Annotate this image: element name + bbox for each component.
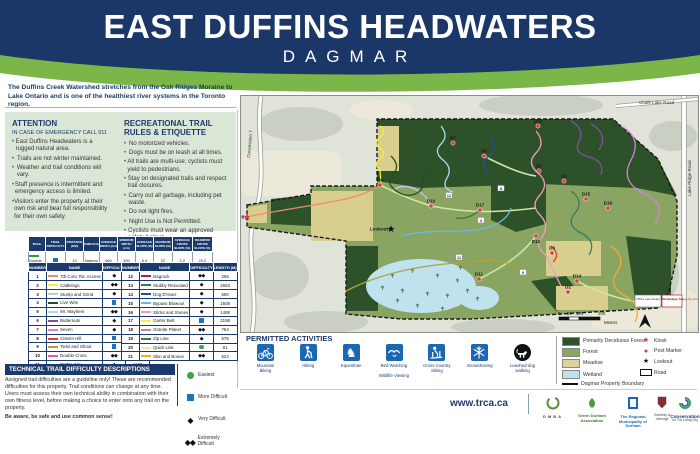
trail-color-swatch bbox=[141, 320, 151, 322]
rules-title: RECREATIONAL TRAIL RULES & ETIQUETTE bbox=[124, 120, 230, 138]
red-star-icon: ★ bbox=[640, 337, 652, 344]
trail-color-swatch bbox=[48, 275, 58, 277]
trail-name: 7th Conc Rd. Access bbox=[47, 272, 103, 281]
marker-label: D12 bbox=[532, 239, 541, 244]
map-legend-point-item: ★Lookout bbox=[640, 358, 682, 365]
activity-label: MountainBiking bbox=[244, 363, 287, 373]
snowshoe-icon bbox=[471, 344, 488, 361]
map-legend-area-item: Primarily Deciduous Forest bbox=[562, 337, 645, 346]
extremely-difficult-symbol: ◆◆ bbox=[198, 353, 205, 359]
more-difficult-symbol bbox=[112, 336, 117, 341]
trail-color-swatch bbox=[48, 302, 58, 304]
marker-label: D6 bbox=[481, 149, 487, 154]
marker-label: D3 bbox=[549, 246, 555, 251]
very-difficult-symbol: ◆ bbox=[200, 282, 203, 288]
intro-text: The Duffins Creek Watershed stretches fr… bbox=[8, 84, 234, 110]
trail-color-swatch bbox=[141, 355, 151, 357]
road-label-north: Chalk Lake Road bbox=[639, 100, 675, 105]
post-marker bbox=[534, 234, 538, 238]
difficulty-legend-label: Extremely Difficult bbox=[198, 435, 236, 447]
trail-number: 18 bbox=[122, 325, 140, 334]
hiking-icon bbox=[300, 344, 317, 361]
trail-col-header: LENGTH (M) bbox=[213, 263, 237, 272]
trail-name: Mr. Mayhem bbox=[47, 307, 103, 316]
trail-length: 81 bbox=[213, 343, 237, 352]
trail-number: 7 bbox=[29, 325, 47, 334]
trail-name: Cistern Hill bbox=[47, 334, 103, 343]
trail-row: 13Stubby Relocated◆2653 bbox=[122, 281, 238, 290]
point-legend-label: Kiosk bbox=[654, 338, 667, 344]
marker-label: D4 bbox=[561, 174, 567, 179]
trail-length: 2198 bbox=[213, 317, 237, 326]
trail-name: Butternuts bbox=[47, 316, 103, 325]
access-col-header: AVERAGE WIDTH (cm) bbox=[99, 237, 118, 252]
trail-difficulty: ◆◆ bbox=[190, 352, 213, 361]
svg-text:Meters: Meters bbox=[604, 320, 618, 325]
extremely-difficult-symbol: ◆◆ bbox=[198, 273, 205, 279]
bullet-text: Dogs must be on leash at all times. bbox=[129, 150, 222, 158]
trail-color-swatch bbox=[48, 346, 58, 348]
trail-difficulty: ◆◆ bbox=[190, 325, 213, 334]
trail-name: Cattlelogs bbox=[47, 281, 103, 290]
trail-number: 10 bbox=[29, 351, 47, 360]
rules-section: RECREATIONAL TRAIL RULES & ETIQUETTE •No… bbox=[124, 120, 230, 245]
attention-section: ATTENTION IN CASE OF EMERGENCY CALL 911 … bbox=[12, 120, 112, 223]
conservation-swirl-icon bbox=[679, 397, 691, 409]
mountain-bike-icon bbox=[257, 344, 274, 361]
road-swatch bbox=[640, 369, 652, 376]
post-marker bbox=[482, 154, 486, 158]
very-difficult-symbol: ◆ bbox=[200, 300, 203, 306]
trail-number: 5 bbox=[29, 307, 47, 316]
trail-number: 4 bbox=[29, 299, 47, 308]
bullet-text: Do not light fires. bbox=[129, 209, 174, 217]
trail-number: 16 bbox=[122, 308, 140, 317]
svg-text:♞: ♞ bbox=[345, 345, 356, 359]
trail-color-swatch bbox=[29, 255, 39, 257]
map-legend-area-item: Dagmar Property Boundary bbox=[562, 381, 645, 387]
bird-watching-icon bbox=[386, 344, 403, 361]
marker-label: D11 bbox=[475, 272, 484, 277]
post-marker bbox=[536, 124, 540, 128]
extremely-difficult-symbol: ◆◆ bbox=[111, 282, 118, 288]
bullet-text: Visitors enter the property at their own… bbox=[14, 199, 112, 222]
difficulty-legend-label: Easiest bbox=[198, 372, 214, 378]
attention-item: •Weather and trail conditions will vary. bbox=[12, 165, 112, 180]
difficulty-legend: EasiestMore Difficult◆Very Difficult◆◆Ex… bbox=[184, 366, 236, 454]
access-table-header: TRAILTRAIL DIFFICULTYDISTANCE (KM)SURFAC… bbox=[29, 237, 213, 252]
marker-label: D15 bbox=[582, 192, 591, 197]
very-difficult-symbol: ◆ bbox=[112, 291, 115, 297]
trail-difficulty: ◆◆ bbox=[190, 272, 213, 281]
trail-difficulty: ◆ bbox=[190, 290, 213, 299]
trail-name: Granite Planet bbox=[140, 325, 190, 334]
bullet-text: Stay on designated trails and respect tr… bbox=[128, 176, 230, 191]
trail-chip-number: 12 bbox=[447, 193, 452, 198]
area-legend-label: Wetland bbox=[583, 372, 602, 378]
trail-number: 9 bbox=[29, 343, 47, 352]
trail-difficulty: ◆ bbox=[190, 281, 213, 290]
marker-label: D8 bbox=[241, 215, 244, 220]
difficulty-legend-item: More Difficult bbox=[184, 388, 236, 406]
access-col-header: MAXIMUM SLOPE (%) bbox=[154, 237, 173, 252]
post-marker bbox=[606, 206, 610, 210]
road-icon bbox=[640, 369, 652, 378]
technical-difficulty-title: TECHNICAL TRAIL DIFFICULTY DESCRIPTIONS bbox=[5, 364, 175, 375]
activity-bird-watching: Bird WatchingWildlife Viewing bbox=[373, 344, 416, 378]
divider bbox=[5, 107, 236, 108]
activity-label: Bird WatchingWildlife Viewing bbox=[373, 363, 416, 378]
attention-item: •Visitors enter the property at their ow… bbox=[12, 199, 112, 222]
trail-col-header: NAME bbox=[140, 263, 190, 272]
more-difficult-symbol bbox=[187, 394, 194, 401]
trail-row: 20Quick Link81 bbox=[122, 343, 238, 352]
access-col-header: MAXIMUM CROSS SLOPE (%) bbox=[192, 237, 212, 252]
black-star-icon: ★ bbox=[640, 358, 652, 365]
trail-length: 1608 bbox=[213, 299, 237, 308]
technical-difficulty-footer: Be aware, be safe and use common sense! bbox=[5, 414, 175, 420]
activity-label: Leashed-dogwalking bbox=[501, 363, 544, 373]
trail-name: Zip Line bbox=[140, 334, 190, 343]
marker-label: D2 bbox=[565, 285, 571, 290]
trail-length: 754 bbox=[213, 325, 237, 334]
trail-length: 2653 bbox=[213, 281, 237, 290]
marker-label: D16 bbox=[604, 201, 613, 206]
access-col-header: TRAIL bbox=[29, 237, 46, 252]
svg-text:100: 100 bbox=[576, 311, 584, 316]
trail-color-swatch bbox=[48, 355, 58, 357]
logo-durham-region: The Regional Municipality of Durham bbox=[614, 396, 652, 429]
xc-ski-icon bbox=[428, 344, 445, 361]
post-marker bbox=[429, 204, 433, 208]
marker-label: D17 bbox=[476, 203, 485, 208]
trail-col-header: DIFFICULTY bbox=[190, 263, 213, 272]
trail-row: 14Dog D'Huez◆590 bbox=[122, 290, 238, 299]
divider bbox=[177, 364, 178, 406]
trail-difficulty: ◆ bbox=[190, 308, 213, 317]
rules-item: •Stay on designated trails and respect t… bbox=[124, 176, 230, 191]
equestrian-icon: ♞ bbox=[343, 344, 360, 361]
trail-name: Stump and Grind bbox=[47, 290, 103, 299]
rules-list: •No motorized vehicles.•Dogs must be on … bbox=[124, 141, 230, 244]
trail-name: Double Cross bbox=[47, 351, 103, 360]
trail-number: 3 bbox=[29, 290, 47, 299]
post-marker bbox=[550, 251, 554, 255]
page-title: EAST DUFFINS HEADWATERS bbox=[0, 8, 700, 46]
trail-map: Concession 7 Lake Ridge Road Chalk Lake … bbox=[240, 95, 699, 333]
very-difficult-symbol: ◆ bbox=[112, 327, 115, 333]
marker-label: D9 bbox=[377, 178, 383, 183]
trail-number: 12 bbox=[122, 272, 140, 281]
trail-length: 524 bbox=[213, 352, 237, 361]
technical-difficulty-body: Assigned trail difficulties are a guidel… bbox=[5, 377, 175, 411]
post-marker bbox=[575, 279, 579, 283]
rules-item: •Carry out all garbage, including pet wa… bbox=[124, 193, 230, 208]
trail-name: Dagrock bbox=[140, 272, 190, 281]
map-canvas: Concession 7 Lake Ridge Road Chalk Lake … bbox=[241, 96, 698, 332]
marker-label: D10 bbox=[427, 199, 436, 204]
map-legend-area-item: Wetland bbox=[562, 370, 645, 379]
difficulty-legend-label: Very Difficult bbox=[198, 416, 226, 422]
extreme-symbol: ◆◆ bbox=[185, 438, 195, 447]
rules-item: •Do not light fires. bbox=[124, 209, 230, 217]
svg-text:50: 50 bbox=[567, 311, 572, 316]
map-legend-point-item: ★Kiosk bbox=[640, 337, 682, 344]
access-col-header: SURFACE bbox=[83, 237, 99, 252]
access-col-header: TRAIL DIFFICULTY bbox=[45, 237, 65, 252]
green-durham-logo-icon bbox=[586, 397, 598, 409]
attention-item: •Staff presence is intermittent and emer… bbox=[12, 182, 112, 197]
bullet-text: Staff presence is intermittent and emerg… bbox=[15, 182, 112, 197]
trail-color-swatch bbox=[141, 311, 151, 313]
activity-label: Hiking bbox=[287, 363, 330, 368]
trail-name: Bypass Blowout bbox=[140, 299, 190, 308]
permitted-activities-title: PERMITTED ACTIVITIES bbox=[246, 334, 332, 343]
permitted-activities: MountainBikingHiking♞EquestrianBird Watc… bbox=[244, 344, 544, 378]
extremely-difficult-symbol: ◆◆ bbox=[198, 327, 205, 333]
trail-difficulty bbox=[190, 343, 213, 352]
divider bbox=[240, 389, 697, 390]
trail-name: Quick Link bbox=[140, 343, 190, 352]
very-symbol: ◆ bbox=[187, 416, 192, 425]
easiest-symbol bbox=[187, 372, 194, 379]
attention-item: •East Duffins Headwaters is a rugged nat… bbox=[12, 139, 112, 154]
access-col-header: AVERAGE CROSS SLOPE (%) bbox=[172, 237, 192, 252]
technical-difficulty-section: TECHNICAL TRAIL DIFFICULTY DESCRIPTIONS … bbox=[5, 364, 175, 420]
bullet-text: Carry out all garbage, including pet was… bbox=[129, 193, 230, 208]
trail-difficulty: ◆ bbox=[190, 334, 213, 343]
post-marker bbox=[537, 169, 541, 173]
trail-row: 15Bypass Blowout◆1608 bbox=[122, 299, 238, 308]
trail-number: 13 bbox=[122, 281, 140, 290]
trail-color-swatch bbox=[48, 284, 58, 286]
trail-name: Stubby Relocated bbox=[140, 281, 190, 290]
trail-color-swatch bbox=[141, 338, 151, 340]
post-marker bbox=[477, 277, 481, 281]
activity-xc-ski: Cross CountrySkiing bbox=[415, 344, 458, 378]
post-marker bbox=[478, 208, 482, 212]
area-legend-label: Forest bbox=[583, 349, 598, 355]
map-legend-area-item: Forest bbox=[562, 348, 645, 357]
trail-color-swatch bbox=[141, 293, 151, 295]
post-marker bbox=[566, 290, 570, 294]
trail-number: 6 bbox=[29, 316, 47, 325]
map-legend-area-item: Meadow bbox=[562, 359, 645, 368]
svg-text:200: 200 bbox=[598, 311, 606, 316]
trail-name: Seven bbox=[47, 325, 103, 334]
trail-row: 18Granite Planet◆◆754 bbox=[122, 325, 238, 334]
bullet-text: Night Use is Not Permitted. bbox=[129, 219, 201, 227]
attention-list: •East Duffins Headwaters is a rugged nat… bbox=[12, 139, 112, 222]
marker-label: D7 bbox=[450, 136, 456, 141]
access-col-header: AVERAGE SLOPE (%) bbox=[135, 237, 153, 252]
logo-conservation: Conservation for The Living City bbox=[670, 396, 700, 423]
trail-name: Twist and Shout bbox=[47, 343, 103, 352]
bullet-text: Weather and trail conditions will vary. bbox=[17, 165, 112, 180]
more-difficult-symbol bbox=[112, 300, 117, 305]
extremely-difficult-symbol: ◆◆ bbox=[111, 309, 118, 315]
trail-color-swatch bbox=[141, 302, 151, 304]
area-swatch bbox=[562, 370, 580, 379]
rules-item: •Dogs must be on leash at all times. bbox=[124, 150, 230, 158]
activity-snowshoe: Snowshoeing bbox=[458, 344, 501, 378]
trail-row: 17Garter Belt2198 bbox=[122, 317, 238, 326]
trail-length: 678 bbox=[213, 334, 237, 343]
more-difficult-symbol bbox=[199, 318, 204, 323]
rules-item: •No motorized vehicles. bbox=[124, 141, 230, 149]
difficulty-legend-item: Easiest bbox=[184, 366, 236, 384]
post-marker bbox=[584, 197, 588, 201]
bullet-text: East Duffins Headwaters is a rugged natu… bbox=[16, 139, 112, 154]
very-difficult-symbol: ◆ bbox=[200, 309, 203, 315]
trail-number: 1 bbox=[29, 272, 47, 281]
durham-region-logo-icon bbox=[627, 396, 639, 410]
trail-col-header: NUMBER bbox=[29, 263, 47, 272]
area-legend-label: Meadow bbox=[583, 360, 603, 366]
attention-title: ATTENTION bbox=[12, 120, 112, 129]
post-marker bbox=[451, 141, 455, 145]
activity-leashed-dog: Leashed-dogwalking bbox=[501, 344, 544, 378]
trail-color-swatch bbox=[141, 275, 151, 277]
post-marker bbox=[562, 179, 566, 183]
activity-label: Equestrian bbox=[330, 363, 373, 368]
very-difficult-symbol: ◆ bbox=[112, 273, 115, 279]
marker-label: D5 bbox=[536, 164, 542, 169]
trail-row: 16Sticks and Stones◆1488 bbox=[122, 308, 238, 317]
easiest-symbol bbox=[199, 345, 204, 350]
inset-box-2: Emergency Assembly Area bbox=[663, 297, 698, 301]
logo-dmba: DMBA bbox=[536, 396, 570, 420]
area-legend-label: Dagmar Property Boundary bbox=[581, 381, 644, 387]
very-difficult-symbol: ◆ bbox=[112, 318, 115, 324]
rules-item: •Night Use is Not Permitted. bbox=[124, 219, 230, 227]
trail-name: Garter Belt bbox=[140, 317, 190, 326]
trail-name: Skin and Bones bbox=[140, 352, 190, 361]
map-area-legend: Primarily Deciduous ForestForestMeadowWe… bbox=[562, 337, 645, 390]
bullet-text: All trails are multi-use; cyclists must … bbox=[127, 159, 230, 174]
trail-length: 265 bbox=[213, 272, 237, 281]
bullet-text: No motorized vehicles. bbox=[129, 141, 190, 149]
trail-number: 19 bbox=[122, 334, 140, 343]
bullet-text: Trails are not winter maintained. bbox=[17, 156, 102, 164]
attention-subtitle: IN CASE OF EMERGENCY CALL 911 bbox=[12, 130, 112, 136]
difficulty-legend-item: ◆Very Difficult bbox=[184, 410, 236, 428]
area-swatch bbox=[562, 348, 580, 357]
website-link[interactable]: www.trca.ca bbox=[450, 398, 508, 409]
marker-label: D14 bbox=[573, 274, 582, 279]
header-banner: EAST DUFFINS HEADWATERS DAGMAR bbox=[0, 0, 700, 96]
trail-color-swatch bbox=[48, 311, 58, 313]
map-legend-point-item: Road bbox=[640, 369, 682, 378]
boundary-line-swatch bbox=[562, 383, 578, 385]
point-legend-label: Post Marker bbox=[654, 348, 682, 354]
rules-item: •All trails are multi-use; cyclists must… bbox=[124, 159, 230, 174]
trail-number: 2 bbox=[29, 281, 47, 290]
uxbridge-crest-icon bbox=[656, 396, 668, 409]
trail-number: 15 bbox=[122, 299, 140, 308]
divider bbox=[556, 336, 557, 384]
trail-length: 1488 bbox=[213, 308, 237, 317]
trail-color-swatch bbox=[141, 329, 151, 331]
logo-uxbridge: Township of Uxbridge bbox=[652, 396, 672, 421]
trail-table-right: NUMBERNAMEDIFFICULTYLENGTH (M)12Dagrock◆… bbox=[121, 262, 238, 361]
road-label-east: Lake Ridge Road bbox=[687, 160, 692, 196]
trail-number: 14 bbox=[122, 290, 140, 299]
trail-number: 8 bbox=[29, 334, 47, 343]
trail-number: 21 bbox=[122, 352, 140, 361]
point-legend-label: Road bbox=[654, 370, 666, 376]
marker-label: D13 bbox=[534, 119, 543, 124]
map-legend-point-item: ●Post Marker bbox=[640, 348, 682, 355]
difficulty-legend-item: ◆◆Extremely Difficult bbox=[184, 432, 236, 450]
leashed-dog-icon bbox=[514, 344, 531, 361]
dmba-logo-icon bbox=[546, 396, 560, 410]
map-point-legend: ★Kiosk●Post Marker★LookoutRoad bbox=[640, 337, 682, 381]
access-col-header: MINIMUM WIDTH (cm) bbox=[118, 237, 135, 252]
post-marker bbox=[378, 183, 382, 187]
trail-col-header: NUMBER bbox=[122, 263, 140, 272]
trail-name: Live Wire bbox=[47, 299, 103, 308]
marker-label: Lookout bbox=[370, 227, 389, 232]
trail-color-swatch bbox=[141, 284, 151, 286]
red-circle-icon: ● bbox=[640, 348, 652, 355]
trail-row: 19Zip Line◆678 bbox=[122, 334, 238, 343]
activity-mountain-bike: MountainBiking bbox=[244, 344, 287, 378]
area-swatch bbox=[562, 359, 580, 368]
trail-name: Dog D'Huez bbox=[140, 290, 190, 299]
trail-color-swatch bbox=[48, 338, 58, 340]
extremely-difficult-symbol: ◆◆ bbox=[111, 353, 118, 359]
attention-item: •Trails are not winter maintained. bbox=[12, 156, 112, 164]
area-swatch bbox=[562, 337, 580, 346]
divider bbox=[528, 394, 529, 414]
trail-color-swatch bbox=[48, 329, 58, 331]
trail-difficulty: ◆ bbox=[190, 299, 213, 308]
activity-hiking: Hiking bbox=[287, 344, 330, 378]
logo-green-durham: Green Durham Association bbox=[574, 396, 610, 423]
difficulty-legend-label: More Difficult bbox=[198, 394, 227, 400]
trail-row: 12Dagrock◆◆265 bbox=[122, 272, 238, 281]
access-col-header: DISTANCE (KM) bbox=[66, 237, 84, 252]
trail-col-header: NAME bbox=[47, 263, 103, 272]
activity-label: Snowshoeing bbox=[458, 363, 501, 368]
trail-difficulty bbox=[190, 317, 213, 326]
point-legend-label: Lookout bbox=[654, 359, 672, 365]
very-difficult-symbol: ◆ bbox=[200, 336, 203, 342]
trail-color-swatch bbox=[48, 320, 58, 322]
activity-equestrian: ♞Equestrian bbox=[330, 344, 373, 378]
trail-length: 590 bbox=[213, 290, 237, 299]
activity-label: Cross CountrySkiing bbox=[415, 363, 458, 373]
page-subtitle: DAGMAR bbox=[0, 47, 700, 67]
trail-number: 17 bbox=[122, 317, 140, 326]
trail-row: 21Skin and Bones◆◆524 bbox=[122, 352, 238, 361]
area-legend-label: Primarily Deciduous Forest bbox=[583, 338, 645, 344]
trail-color-swatch bbox=[48, 293, 58, 295]
more-difficult-symbol bbox=[112, 344, 117, 349]
trail-color-swatch bbox=[141, 347, 151, 349]
trail-name: Sticks and Stones bbox=[140, 308, 190, 317]
very-difficult-symbol: ◆ bbox=[200, 291, 203, 297]
trail-number: 20 bbox=[122, 343, 140, 352]
